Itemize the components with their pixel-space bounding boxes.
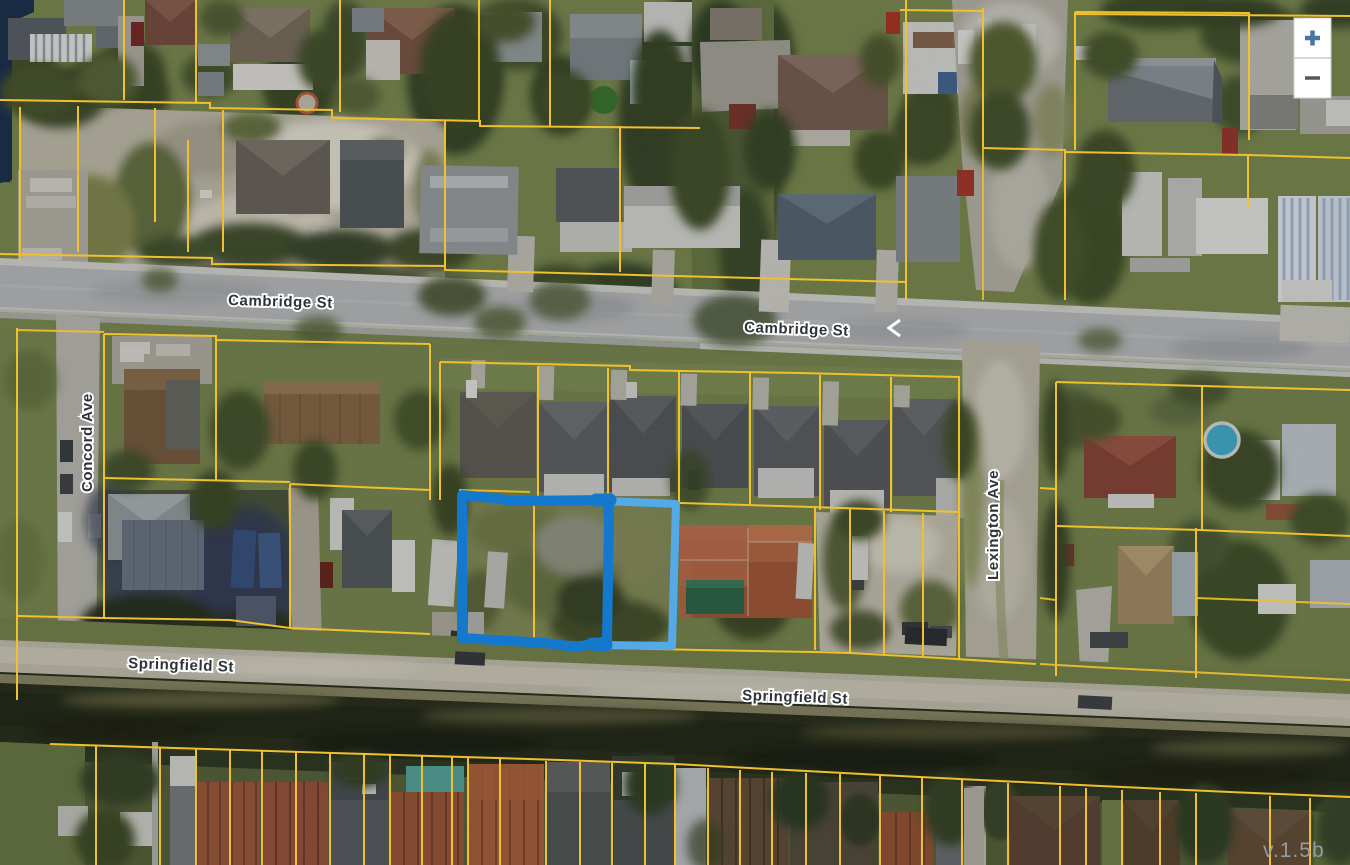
svg-text:Cambridge St: Cambridge St (228, 292, 333, 312)
svg-text:v.1.5b: v.1.5b (1263, 839, 1325, 862)
svg-text:Concord Ave: Concord Ave (79, 393, 96, 492)
svg-text:Lexington Ave: Lexington Ave (985, 470, 1002, 580)
